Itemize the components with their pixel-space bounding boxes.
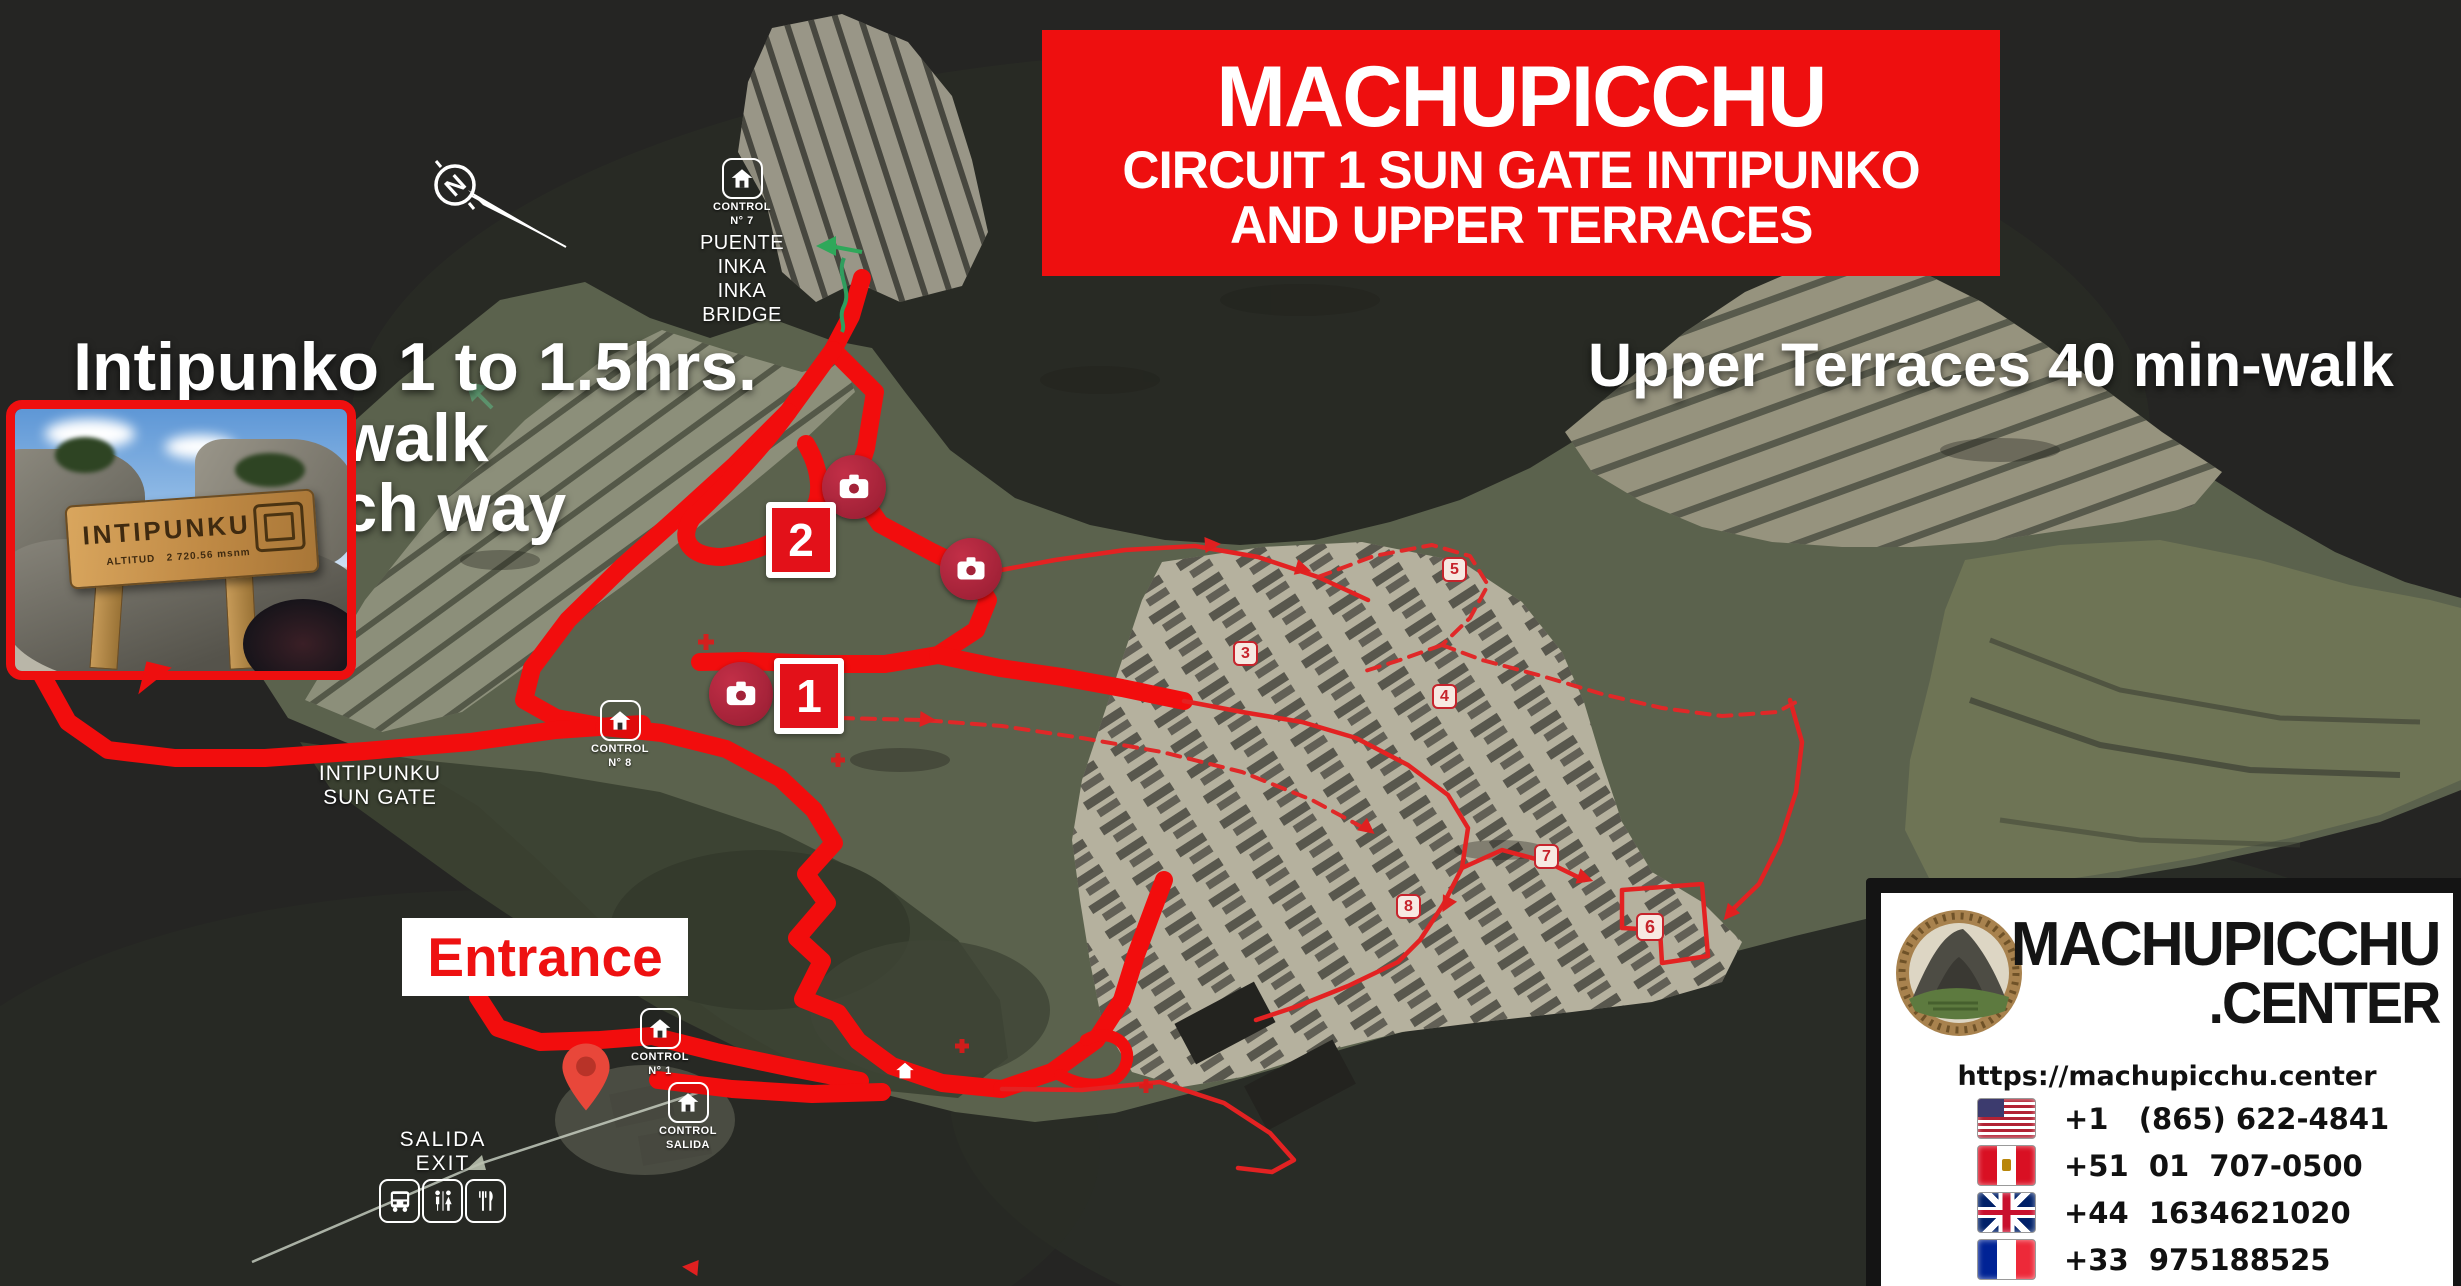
upper-terraces-note: Upper Terraces 40 min-walk (1588, 330, 2394, 400)
restaurant-icon (465, 1179, 506, 1223)
brand-name: MACHUPICCHU .CENTER (2010, 915, 2439, 1033)
title-banner: MACHUPICCHU CIRCUIT 1 SUN GATE INTIPUNKO… (1042, 30, 2000, 276)
sun-gate-label: INTIPUNKUSUN GATE (300, 762, 460, 810)
camera-icon (940, 538, 1002, 600)
salida-exit-label: SALIDAEXIT (383, 1128, 503, 1176)
usa-flag-icon (1977, 1098, 2036, 1139)
peru-flag-icon (1977, 1145, 2036, 1186)
brand-url: https://machupicchu.center (1881, 1061, 2453, 1092)
poi-marker-7: 7 (1534, 844, 1559, 869)
control-label: CONTROLSALIDA (659, 1125, 717, 1153)
phone-row-peru: +51 01 707-0500 (1977, 1145, 2363, 1186)
phone-row-uk: +44 1634621020 (1977, 1192, 2351, 1233)
machupicchu-center-logo (1893, 907, 2025, 1039)
control-7-badge: CONTROLN° 7 PUENTE INKAINKA BRIDGE (687, 158, 797, 327)
poi-marker-3: 3 (1233, 641, 1258, 666)
house-icon (894, 1060, 916, 1087)
intipunku-sign: INTIPUNKU ALTITUD 2 720.56 msnm (64, 488, 319, 589)
poi-marker-6: 6 (1636, 913, 1664, 941)
control-label: CONTROLN° 7 (713, 201, 771, 229)
poi-marker-4: 4 (1432, 684, 1457, 709)
poi-marker-8: 8 (1396, 894, 1421, 919)
marker-number: 2 (788, 513, 814, 567)
brand-card: MACHUPICCHU .CENTER https://machupicchu.… (1866, 878, 2461, 1286)
house-icon (600, 700, 641, 741)
title-line1: MACHUPICCHU (1217, 53, 1826, 142)
phone-number: +51 01 707-0500 (2064, 1149, 2363, 1183)
sign-map-glyph (253, 501, 306, 552)
sign-title: INTIPUNKU (81, 509, 251, 552)
toilets-icon (422, 1179, 463, 1223)
entrance-label: Entrance (402, 918, 688, 996)
france-flag-icon (1977, 1239, 2036, 1280)
title-line3: AND UPPER TERRACES (1230, 198, 1812, 253)
control-8-badge: CONTROLN° 8 (580, 700, 660, 771)
title-line2: CIRCUIT 1 SUN GATE INTIPUNKO (1122, 143, 1919, 198)
phone-number: +1 (865) 622-4841 (2064, 1102, 2389, 1136)
camera-icon (709, 662, 773, 726)
backpack-shadow (243, 599, 356, 680)
marker-number: 1 (796, 669, 822, 723)
phone-number: +33 975188525 (2064, 1243, 2330, 1277)
uk-flag-icon (1977, 1192, 2036, 1233)
house-icon (640, 1008, 681, 1049)
phone-number: +44 1634621020 (2064, 1196, 2351, 1230)
inka-bridge-label: PUENTE INKAINKA BRIDGE (687, 231, 797, 327)
poi-marker-5: 5 (1442, 557, 1467, 582)
stop-marker-1: 1 (774, 658, 844, 734)
bush (235, 453, 305, 487)
poster-root: N MACHUPICCHU CIRCUIT 1 SUN GATE INTIPUN… (0, 0, 2461, 1286)
stop-marker-2: 2 (766, 502, 836, 578)
entrance-text: Entrance (427, 925, 662, 989)
phone-row-france: +33 975188525 (1977, 1239, 2330, 1280)
house-icon (722, 158, 763, 199)
control-1-badge: CONTROLN° 1 (620, 1008, 700, 1079)
house-icon (668, 1082, 709, 1123)
phone-row-usa: +1 (865) 622-4841 (1977, 1098, 2389, 1139)
control-salida-badge: CONTROLSALIDA (648, 1082, 728, 1153)
sign-altitude: ALTITUD 2 720.56 msnm (106, 547, 251, 568)
bush (55, 437, 115, 473)
location-pin-icon (560, 1042, 612, 1117)
control-label: CONTROLN° 1 (631, 1051, 689, 1079)
bus-icon (379, 1179, 420, 1223)
control-label: CONTROLN° 8 (591, 743, 649, 771)
intipunku-photo-inset: INTIPUNKU ALTITUD 2 720.56 msnm (6, 400, 356, 680)
